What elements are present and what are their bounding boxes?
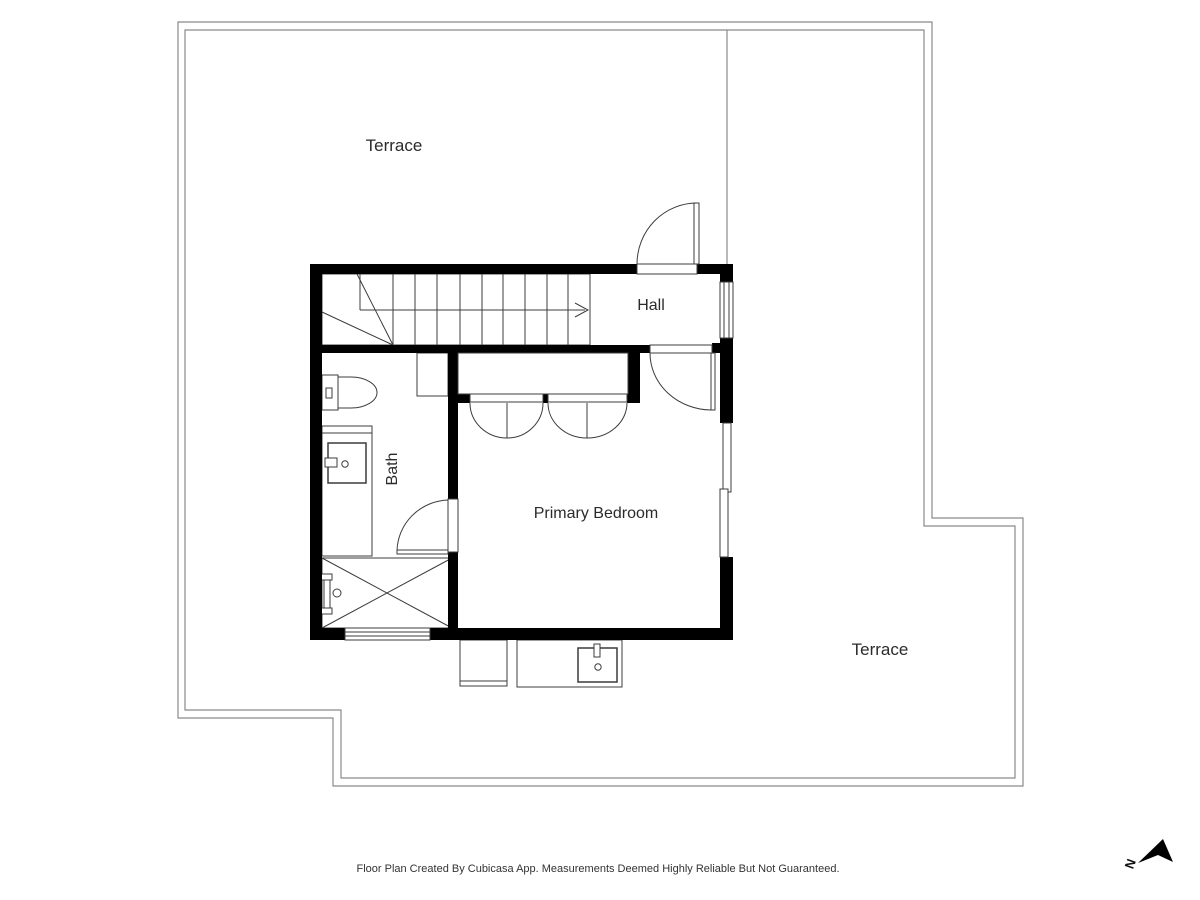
understair-cabinet	[417, 353, 448, 396]
stairs-direction-arrow	[360, 303, 588, 317]
room-label-terrace-top: Terrace	[366, 136, 423, 155]
wall-right-upper	[720, 264, 733, 282]
bath-door	[397, 499, 458, 554]
room-label-hall: Hall	[637, 297, 665, 314]
bedroom-closet	[458, 353, 628, 438]
wall-hall-south	[322, 345, 650, 353]
vanity-sink	[322, 426, 372, 556]
toilet	[322, 375, 377, 410]
bath-fixtures	[321, 353, 452, 628]
bedroom-door-threshold	[650, 345, 712, 353]
room-label-bath: Bath	[384, 453, 401, 486]
outdoor-sink-counter	[517, 640, 622, 687]
room-label-primary-bedroom: Primary Bedroom	[534, 505, 658, 522]
wall-left	[310, 264, 322, 640]
footer-disclaimer: Floor Plan Created By Cubicasa App. Meas…	[356, 863, 839, 875]
room-label-terrace-bottom: Terrace	[852, 640, 909, 659]
entry-door-leaf	[694, 203, 699, 264]
floor-plan-canvas: Terrace Hall Bath Primary Bedroom Terrac…	[0, 0, 1200, 900]
closet-track-left	[470, 394, 543, 402]
faucet	[325, 458, 337, 467]
bath-door-leaf	[397, 550, 448, 554]
bedroom-door-swing-arc	[650, 353, 711, 410]
closet-track-right	[548, 394, 627, 402]
closet-body	[458, 353, 628, 394]
north-arrow-label: N	[1122, 857, 1139, 871]
north-arrow-icon	[1138, 839, 1173, 863]
wall-bath-bedroom-upper	[448, 345, 458, 499]
bath-door-threshold	[448, 499, 458, 552]
entry-door-threshold	[637, 264, 697, 274]
bath-window	[345, 628, 430, 640]
wall-bottom-right	[430, 628, 733, 640]
bedroom-door	[650, 345, 715, 410]
terrace-fixtures	[460, 640, 622, 687]
faucet	[594, 644, 600, 657]
toilet-flush-button	[326, 388, 332, 398]
wardrobe-doors	[470, 403, 627, 438]
wall-bottom-left	[310, 628, 345, 640]
hall-window	[720, 282, 733, 338]
entry-door	[637, 203, 699, 274]
bath-door-swing-arc	[397, 500, 448, 551]
closet-right-pier	[627, 348, 640, 403]
stairs	[322, 274, 590, 345]
wall-bedroom-door-jamb	[712, 343, 733, 353]
wall-right-lower	[720, 557, 733, 640]
bedroom-sliding-window	[720, 423, 733, 557]
stairs-winder-line	[322, 312, 393, 345]
north-arrow: N	[1122, 839, 1173, 871]
outdoor-cabinet	[460, 640, 507, 686]
wall-top-left-of-entry	[310, 264, 637, 274]
bedroom-door-leaf	[711, 353, 715, 410]
shower	[321, 558, 452, 628]
entry-door-swing-arc	[637, 203, 697, 264]
wall-bath-bedroom-lower	[448, 552, 458, 640]
floor-plan-page: Terrace Hall Bath Primary Bedroom Terrac…	[0, 0, 1200, 900]
